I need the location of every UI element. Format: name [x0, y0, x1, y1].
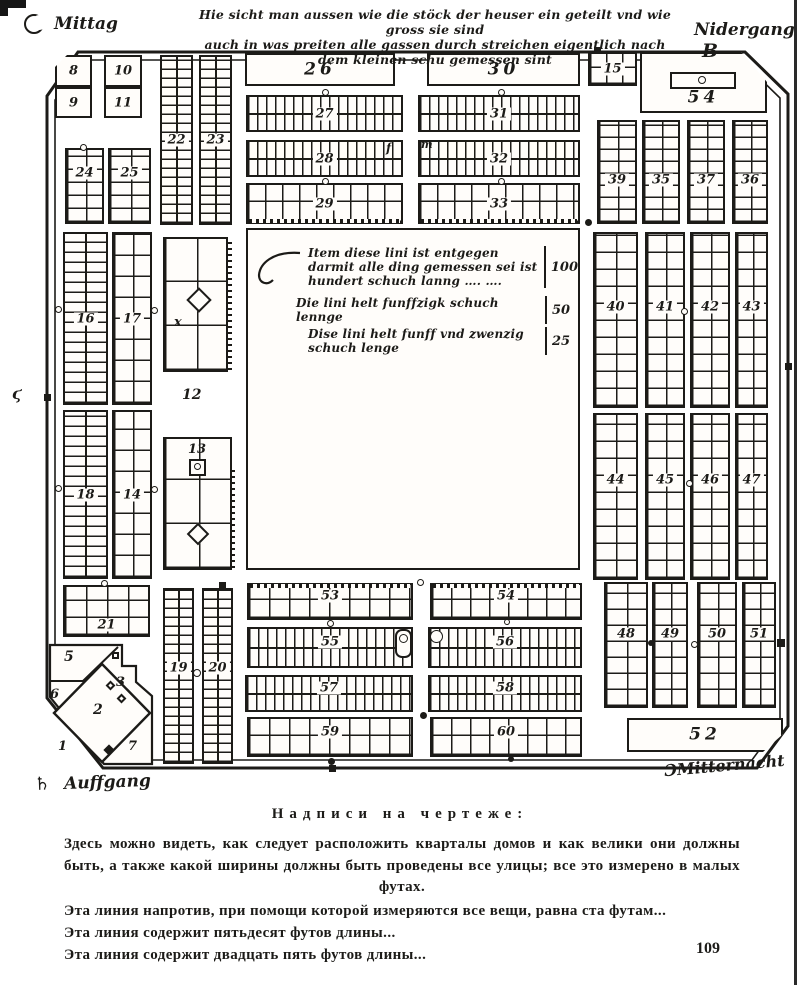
map-mark-hatchv: [231, 468, 235, 568]
block-label: 57: [317, 681, 341, 694]
map-mark-circ: [101, 580, 108, 587]
map-mark-diamond: [106, 681, 116, 691]
map-mark-dot: [648, 640, 654, 646]
city-block-58: 58: [428, 675, 582, 712]
block-label: 47: [739, 473, 763, 486]
block-label: 24: [72, 167, 96, 180]
map-mark-circ: [55, 485, 62, 492]
city-block-60: 60: [430, 717, 582, 757]
block-label: 11: [111, 96, 135, 109]
map-mark-dot: [328, 758, 335, 765]
block-label: 16: [73, 312, 97, 325]
city-block-33: 33: [418, 183, 580, 224]
map-mark-circ: [681, 308, 688, 315]
map-mark-circ: [504, 619, 510, 625]
map-annotation: 7: [128, 740, 137, 753]
city-block-19: 19: [163, 588, 194, 764]
map-mark-circ: [193, 669, 201, 677]
block-label: 23: [203, 134, 227, 147]
block-label: 10: [111, 65, 135, 78]
city-block-39: 39: [597, 120, 637, 224]
city-block-21: 21: [63, 585, 150, 637]
block-label: 48: [614, 628, 638, 641]
city-block-32: 32: [418, 140, 580, 177]
block-label: 21: [94, 619, 118, 632]
map-mark-circ: [691, 641, 698, 648]
city-block-24: 24: [65, 148, 104, 224]
map-mark-circ: [194, 463, 201, 470]
city-block-56: 56: [428, 627, 582, 668]
map-annotation: 12: [182, 388, 201, 402]
city-block-50: 50: [697, 582, 737, 708]
caption-line-100: Эта линия напротив, при помощи которой и…: [64, 900, 764, 922]
caption-line-50: Эта линия содержит пятьдесят футов длины…: [64, 922, 764, 944]
map-mark-circ: [698, 76, 706, 84]
map-mark-circ: [327, 620, 334, 627]
compass-south: Mittag: [24, 14, 118, 34]
city-block-54: 54: [430, 583, 582, 620]
compass-label-mittag: Mittag: [54, 14, 118, 34]
map-annotation: 2: [93, 703, 103, 717]
map-mark-dot: [508, 756, 514, 762]
block-label: 40: [603, 301, 627, 314]
map-mark-circ: [322, 89, 329, 96]
block-label: 19: [166, 662, 190, 675]
map-mark-sq: [777, 639, 785, 647]
map-mark-sqo: [112, 652, 119, 659]
map-annotation: m: [421, 139, 433, 150]
map-mark-sq: [44, 394, 51, 401]
caption-lines: Эта линия напротив, при помощи которой и…: [64, 900, 764, 966]
block-label: 25: [117, 167, 141, 180]
block-label: 22: [164, 134, 188, 147]
block-label: 59: [318, 726, 342, 739]
map-mark-circ: [322, 178, 329, 185]
block-label: 31: [487, 107, 511, 120]
map-mark-circ: [498, 89, 505, 96]
caption-paragraph: Здесь можно видеть, как следует располож…: [64, 834, 740, 899]
header-note: Hie sicht man aussen wie die stöck der h…: [192, 7, 678, 67]
header-note-line2: auch in was preiten alle gassen durch st…: [192, 37, 678, 67]
block-label: 58: [493, 681, 517, 694]
map-mark-sq: [329, 765, 336, 772]
compass-label-auffgang: Auffgang: [64, 771, 151, 794]
city-block-20: 20: [202, 588, 233, 764]
block-label: 32: [487, 152, 511, 165]
map-mark-circ: [55, 306, 62, 313]
map-annotation: f: [386, 142, 391, 154]
city-block-8: 8: [55, 55, 92, 87]
map-mark-circ: [151, 486, 158, 493]
city-block-29: 29: [246, 183, 403, 224]
map-mark-diamond: [117, 694, 127, 704]
city-block-17: 17: [112, 232, 152, 405]
map-mark-circ: [80, 144, 87, 151]
map-mark-sq: [785, 363, 792, 370]
block-label: 50: [705, 628, 729, 641]
map-annotation: 5: [64, 650, 74, 664]
map-annotation: 3: [116, 676, 125, 689]
city-block-27: 27: [246, 95, 403, 132]
block-label: 9: [66, 96, 81, 109]
saturn-symbol-icon: ♄: [34, 773, 51, 795]
block-label: 39: [605, 174, 629, 187]
block-label: 60: [494, 726, 518, 739]
compass-label-nidergang: Nidergang: [694, 20, 795, 40]
city-block-44: 44: [593, 413, 638, 580]
city-block-16: 16: [63, 232, 108, 405]
block-label: 41: [653, 301, 677, 314]
city-block-45: 45: [645, 413, 685, 580]
moon-icon: [24, 14, 44, 34]
city-block-52: 52: [627, 718, 783, 752]
header-note-line1: Hie sicht man aussen wie die stöck der h…: [192, 7, 678, 37]
block-label: 49: [658, 628, 682, 641]
compass-east: ♄ Auffgang: [34, 770, 151, 795]
block-label: 51: [747, 628, 771, 641]
block-label: 33: [487, 197, 511, 210]
map-mark-sq: [219, 582, 226, 589]
city-block-42: 42: [690, 232, 730, 408]
city-block-18: 18: [63, 410, 108, 579]
map-mark-circ: [399, 634, 408, 643]
map-mark-circ: [430, 630, 443, 643]
block-label: 45: [653, 473, 677, 486]
block-label: 54: [494, 589, 518, 602]
map-mark-diamondF: [103, 744, 114, 755]
block-label: 18: [73, 488, 97, 501]
planet-symbol-icon: B: [702, 40, 718, 62]
block-label: 17: [120, 312, 144, 325]
block-label: 46: [698, 473, 722, 486]
city-block-37: 37: [687, 120, 725, 224]
scanned-book-page: Item diese lini ist entgegen darmit alle…: [0, 0, 800, 985]
map-mark-circ: [417, 579, 424, 586]
page-number: 109: [696, 940, 720, 958]
city-block-46: 46: [690, 413, 730, 580]
city-block-59: 59: [247, 717, 413, 757]
city-block-55: 55: [247, 627, 413, 668]
block-label: 27: [312, 107, 336, 120]
map-mark-hatchv: [228, 240, 232, 370]
caption-title: Надписи на чертеже:: [0, 806, 800, 823]
map-annotation: 1: [58, 740, 67, 753]
city-block-49: 49: [652, 582, 688, 708]
block-label: 44: [603, 473, 627, 486]
block-label: 37: [694, 174, 718, 187]
block-label: 36: [738, 174, 762, 187]
caption-line-25: Эта линия содержит двадцать пять футов д…: [64, 944, 764, 966]
compass-west: Nidergang B: [694, 20, 800, 62]
map-mark-dot: [420, 712, 427, 719]
block-label: 52: [685, 729, 725, 742]
city-block-28: 28: [246, 140, 403, 177]
city-block-23: 23: [199, 55, 232, 225]
map-annotation: ϛ: [12, 386, 22, 402]
block-label: 54: [684, 91, 724, 104]
city-block-10: 10: [104, 55, 142, 87]
block-label: 42: [698, 301, 722, 314]
map-mark-circ: [151, 307, 158, 314]
block-label: 29: [312, 197, 336, 210]
block-label: 43: [739, 301, 763, 314]
block-label: 53: [318, 589, 342, 602]
block-label: 8: [66, 65, 81, 78]
city-block-36: 36: [732, 120, 768, 224]
city-block-53: 53: [247, 583, 413, 620]
city-block-48: 48: [604, 582, 648, 708]
city-block-14: 14: [112, 410, 152, 579]
city-block-9: 9: [55, 87, 92, 118]
block-label: 20: [205, 662, 229, 675]
city-block-22: 22: [160, 55, 193, 225]
map-annotation: 6: [50, 688, 59, 701]
city-block-47: 47: [735, 413, 768, 580]
block-label: 14: [120, 488, 144, 501]
city-block-31: 31: [418, 95, 580, 132]
block-label: 56: [493, 635, 517, 648]
city-block-40: 40: [593, 232, 638, 408]
block-label: 55: [318, 635, 342, 648]
map-annotation: x: [174, 316, 182, 329]
city-block-57: 57: [245, 675, 413, 712]
city-block-35: 35: [642, 120, 680, 224]
city-block-11: 11: [104, 87, 142, 118]
city-block-51: 51: [742, 582, 776, 708]
block-label: 35: [649, 174, 673, 187]
city-block-43: 43: [735, 232, 768, 408]
block-label: 28: [312, 152, 336, 165]
map-mark-circ: [498, 178, 505, 185]
city-block-41: 41: [645, 232, 685, 408]
map-mark-circ: [686, 480, 693, 487]
city-block-25: 25: [108, 148, 151, 224]
map-mark-dot: [585, 219, 592, 226]
map-annotation: 13: [188, 443, 206, 456]
